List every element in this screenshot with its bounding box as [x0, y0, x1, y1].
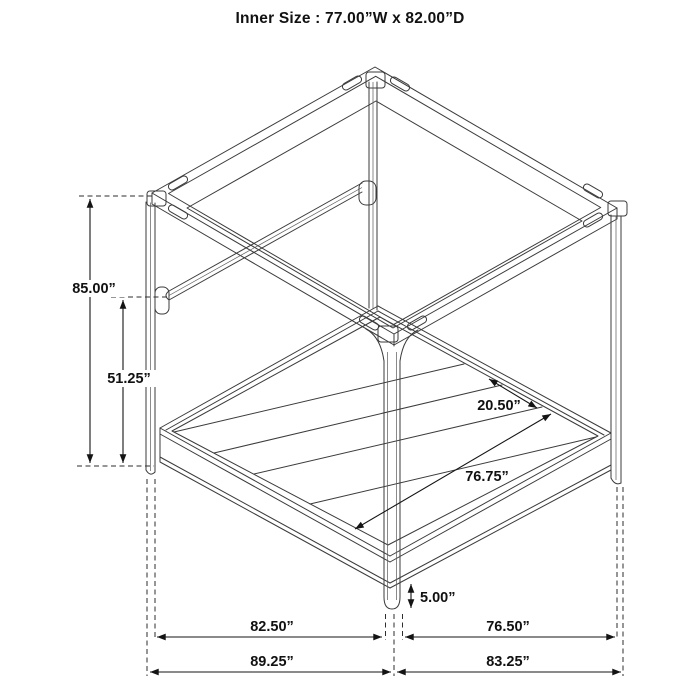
canopy-glass-ledge — [187, 101, 582, 328]
slat-line — [310, 437, 596, 504]
slot-hole — [167, 204, 189, 221]
canopy-top-inner-edge — [169, 76, 601, 324]
headboard-bracket-left — [155, 287, 169, 314]
dim-label-width-outer: 83.25” — [486, 654, 530, 670]
front-post-body — [366, 329, 418, 609]
front-post — [366, 326, 418, 609]
dim-label-clearance: 5.00” — [420, 590, 455, 606]
diagram-page: Inner Size : 77.00”W x 82.00”D — [0, 0, 700, 700]
headboard-bar-contour — [169, 188, 362, 296]
front-post-contours — [388, 352, 397, 600]
platform-back-right-rail — [378, 306, 611, 435]
corner-cap-left — [147, 191, 166, 206]
slat-line — [174, 364, 464, 432]
canopy-frame — [147, 67, 627, 346]
platform-back-left-rail — [160, 306, 378, 430]
platform-front-left-rail — [160, 428, 390, 588]
slot-hole — [389, 76, 411, 93]
dim-label-overall-height: 85.00” — [72, 281, 116, 297]
slot-hole — [341, 75, 363, 92]
platform-front-right-rail — [390, 433, 611, 588]
dim-label-depth-inner: 82.50” — [250, 619, 294, 635]
dim-label-width-inner: 76.50” — [486, 619, 530, 635]
right-post — [611, 215, 621, 484]
canopy-corner-slots — [167, 75, 604, 332]
slat-line — [214, 385, 502, 453]
headboard-rail — [155, 181, 376, 314]
slot-hole — [167, 175, 189, 192]
dim-label-slat-spacing: 20.50” — [477, 398, 521, 414]
dim-label-depth-outer: 89.25” — [250, 654, 294, 670]
dimension-annotations: 85.00” 51.25” 20.50” 76.75” 5.00” 82.50”… — [63, 196, 623, 676]
headboard-bar — [166, 183, 362, 300]
dim-label-rail-height: 51.25” — [107, 371, 151, 387]
slat-line — [254, 407, 542, 474]
left-post — [146, 202, 155, 474]
bed-platform — [160, 306, 611, 588]
headboard-bracket-right — [359, 181, 376, 205]
isometric-line-drawing: 85.00” 51.25” 20.50” 76.75” 5.00” 82.50”… — [0, 0, 700, 700]
dim-label-slat-length: 76.75” — [465, 469, 509, 485]
slot-hole — [582, 183, 604, 200]
